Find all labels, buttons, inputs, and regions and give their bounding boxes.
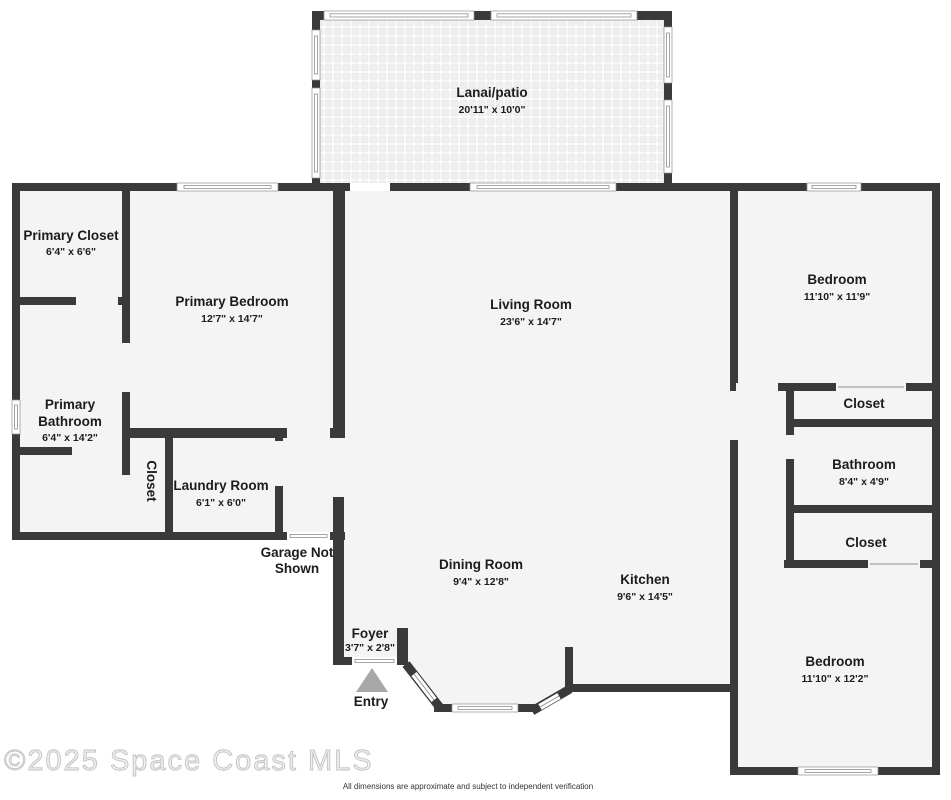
door-opening xyxy=(736,383,778,391)
room-label-bedroom-top-right: Bedroom xyxy=(807,272,866,287)
room-label-laundry: Laundry Room xyxy=(173,478,268,493)
room-label-primary-bedroom: Primary Bedroom xyxy=(175,294,288,309)
room-label-primary-bathroom-line1: Primary xyxy=(45,397,96,412)
sliding-closet-door xyxy=(836,383,906,391)
window-icon xyxy=(177,183,278,191)
window-icon xyxy=(491,11,637,20)
room-label-bedroom-bottom-right: Bedroom xyxy=(805,654,864,669)
room-label-closet-mid-right: Closet xyxy=(845,535,887,550)
room-dims-living-room: 23'6" x 14'7" xyxy=(500,316,562,328)
wall xyxy=(730,440,738,767)
window-icon xyxy=(324,11,474,20)
window-icon xyxy=(470,183,616,191)
mls-watermark: ©2025 Space Coast MLS xyxy=(4,745,374,777)
wall xyxy=(786,419,940,427)
lanai-tile-floor xyxy=(320,19,664,184)
sliding-closet-door xyxy=(868,560,920,568)
room-label-hall-closet: Closet xyxy=(144,460,159,502)
room-dims-primary-bedroom: 12'7" x 14'7" xyxy=(201,313,263,325)
window-icon xyxy=(12,400,20,434)
room-label-foyer: Foyer xyxy=(352,626,390,641)
wall xyxy=(333,497,344,665)
door-opening xyxy=(786,435,794,459)
door-opening xyxy=(738,560,784,568)
room-dims-primary-bathroom: 6'4" x 14'2" xyxy=(42,432,98,444)
garage-door-opening xyxy=(287,532,330,540)
room-dims-bedroom-top-right: 11'10" x 11'9" xyxy=(804,291,870,303)
wall xyxy=(786,505,940,513)
window-icon xyxy=(664,100,672,173)
wall xyxy=(565,684,738,692)
room-dims-bathroom-right: 8'4" x 4'9" xyxy=(839,476,889,488)
floorplan-drawing: Lanai/patio 20'11" x 10'0" Primary Close… xyxy=(0,0,951,800)
wall xyxy=(165,438,173,540)
floorplan-page: Lanai/patio 20'11" x 10'0" Primary Close… xyxy=(0,0,951,800)
door-opening xyxy=(76,297,118,305)
room-label-primary-bathroom-line2: Bathroom xyxy=(38,414,102,429)
room-dims-kitchen: 9'6" x 14'5" xyxy=(617,591,673,603)
entry-door-opening xyxy=(352,657,397,665)
wall xyxy=(12,447,72,455)
room-label-bathroom-right: Bathroom xyxy=(832,457,896,472)
room-label-living-room: Living Room xyxy=(490,297,572,312)
room-label-dining-room: Dining Room xyxy=(439,557,523,572)
window-icon xyxy=(798,767,878,775)
garage-note-line2: Shown xyxy=(275,561,319,576)
room-dims-bedroom-bottom-right: 11'10" x 12'2" xyxy=(802,673,869,685)
door-opening xyxy=(122,343,130,392)
room-label-closet-top-right: Closet xyxy=(843,396,885,411)
door-opening xyxy=(122,475,130,532)
room-dims-dining-room: 9'4" x 12'8" xyxy=(453,576,509,588)
wall xyxy=(122,190,130,305)
room-dims-foyer: 3'7" x 2'8" xyxy=(345,642,395,654)
window-icon xyxy=(664,27,672,83)
garage-note-line1: Garage Not xyxy=(261,545,334,560)
door-opening xyxy=(287,428,330,438)
wall xyxy=(333,190,345,433)
wall xyxy=(397,628,408,665)
disclaimer-text: All dimensions are approximate and subje… xyxy=(343,782,593,791)
wall xyxy=(12,183,20,540)
room-dims-laundry: 6'1" x 6'0" xyxy=(196,497,246,509)
room-dims-primary-closet: 6'4" x 6'6" xyxy=(46,246,96,258)
room-label-kitchen: Kitchen xyxy=(620,572,670,587)
door-opening xyxy=(275,441,283,486)
lanai-door-opening xyxy=(350,183,390,191)
wall xyxy=(565,647,573,692)
room-label-lanai: Lanai/patio xyxy=(456,85,527,100)
window-icon xyxy=(807,183,861,191)
entry-label: Entry xyxy=(354,694,389,709)
window-icon xyxy=(312,88,320,178)
wall xyxy=(730,183,738,391)
room-label-primary-closet: Primary Closet xyxy=(23,228,119,243)
window-icon xyxy=(312,30,320,80)
window-icon xyxy=(452,704,518,712)
wall xyxy=(932,183,940,775)
room-dims-lanai: 20'11" x 10'0" xyxy=(459,104,526,116)
